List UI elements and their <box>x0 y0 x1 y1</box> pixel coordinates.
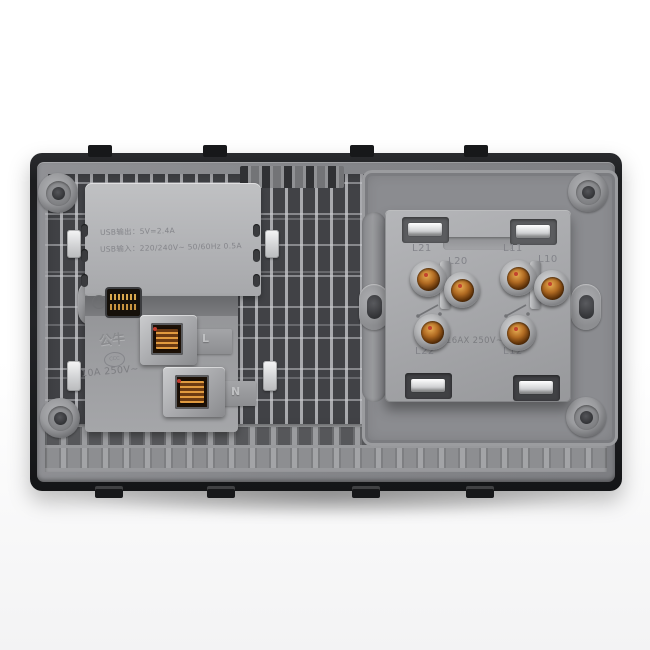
screw-terminal-l20 <box>444 272 480 308</box>
lid-notch <box>81 274 88 287</box>
chrome-spring-clip <box>519 381 553 394</box>
gold-pin-connector <box>107 289 140 316</box>
screw-terminal-l22 <box>414 314 450 350</box>
screw-terminal-l21 <box>410 261 446 297</box>
screw-terminal-l12 <box>500 315 536 351</box>
terminal-label-l: L <box>202 332 209 345</box>
screw-terminal-l10 <box>534 270 570 306</box>
lid-notch <box>253 224 260 237</box>
lid-notch <box>253 249 260 262</box>
mount-tab <box>464 145 488 157</box>
chrome-spring-clip <box>408 223 442 236</box>
oval-mount-slot-right <box>571 284 601 330</box>
screw-boss-bottom-right <box>566 397 606 437</box>
spring-clip <box>263 361 277 391</box>
chrome-spring-clip <box>411 379 445 392</box>
screw-boss-top-right <box>568 172 608 212</box>
terminal-label: L20 <box>448 256 468 267</box>
mount-tab <box>88 145 112 157</box>
screw-boss-bottom-left <box>40 398 80 438</box>
lid-notch <box>81 249 88 262</box>
screw-boss-top-left <box>38 173 78 213</box>
mount-tab <box>466 486 494 498</box>
usb-output-spec: USB输出：5V=2.4A <box>100 225 175 238</box>
terminal-label: L10 <box>538 254 558 265</box>
ground-icon: ⏚ <box>92 295 106 309</box>
terminal-block-l <box>140 315 197 365</box>
screw-terminal-l11 <box>500 260 536 296</box>
terminal-arm-l <box>192 329 232 354</box>
mount-tab <box>95 486 123 498</box>
product-photo-stage: USB输出：5V=2.4A USB输入：220/240V~ 50/60Hz 0.… <box>0 0 650 650</box>
brand-logo-text: 公牛 <box>98 328 126 349</box>
spring-clip <box>67 361 81 391</box>
mount-tab <box>203 145 227 157</box>
mount-tab <box>207 486 235 498</box>
mount-tab <box>350 145 374 157</box>
spring-clip <box>265 230 279 258</box>
terminal-block-n <box>163 367 225 417</box>
switch-module-rating: 16AX 250V~ <box>446 336 503 346</box>
chrome-spring-clip <box>516 225 550 238</box>
lid-notch <box>253 274 260 287</box>
mount-tab <box>352 486 380 498</box>
lid-notch <box>81 224 88 237</box>
terminal-label: L11 <box>503 243 523 254</box>
terminal-label-n: N <box>231 385 240 398</box>
spring-clip <box>67 230 81 258</box>
terminal-label: L21 <box>412 243 432 254</box>
